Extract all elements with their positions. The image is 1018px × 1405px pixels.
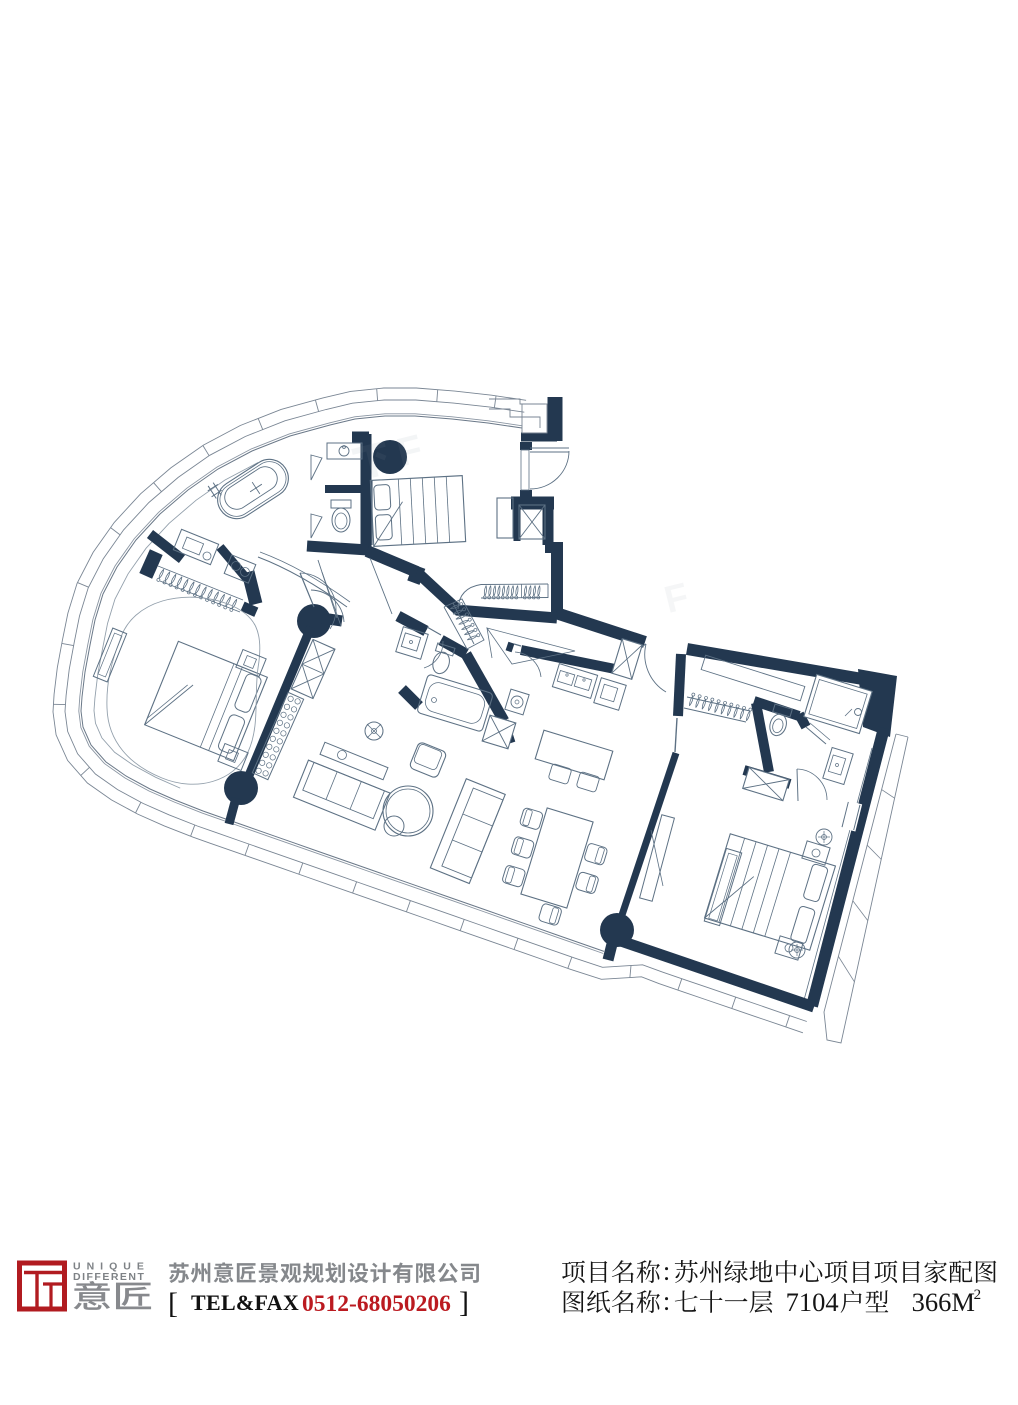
svg-text:0512-68050206: 0512-68050206 <box>302 1291 451 1317</box>
svg-text:7104: 7104 <box>786 1287 839 1317</box>
svg-text:[: [ <box>168 1287 178 1320</box>
svg-text:TEL&FAX: TEL&FAX <box>191 1290 299 1315</box>
svg-text:DIFFERENT: DIFFERENT <box>73 1271 145 1283</box>
svg-text:366M: 366M <box>912 1287 975 1317</box>
svg-text:2: 2 <box>974 1287 982 1303</box>
svg-text:]: ] <box>459 1286 469 1319</box>
